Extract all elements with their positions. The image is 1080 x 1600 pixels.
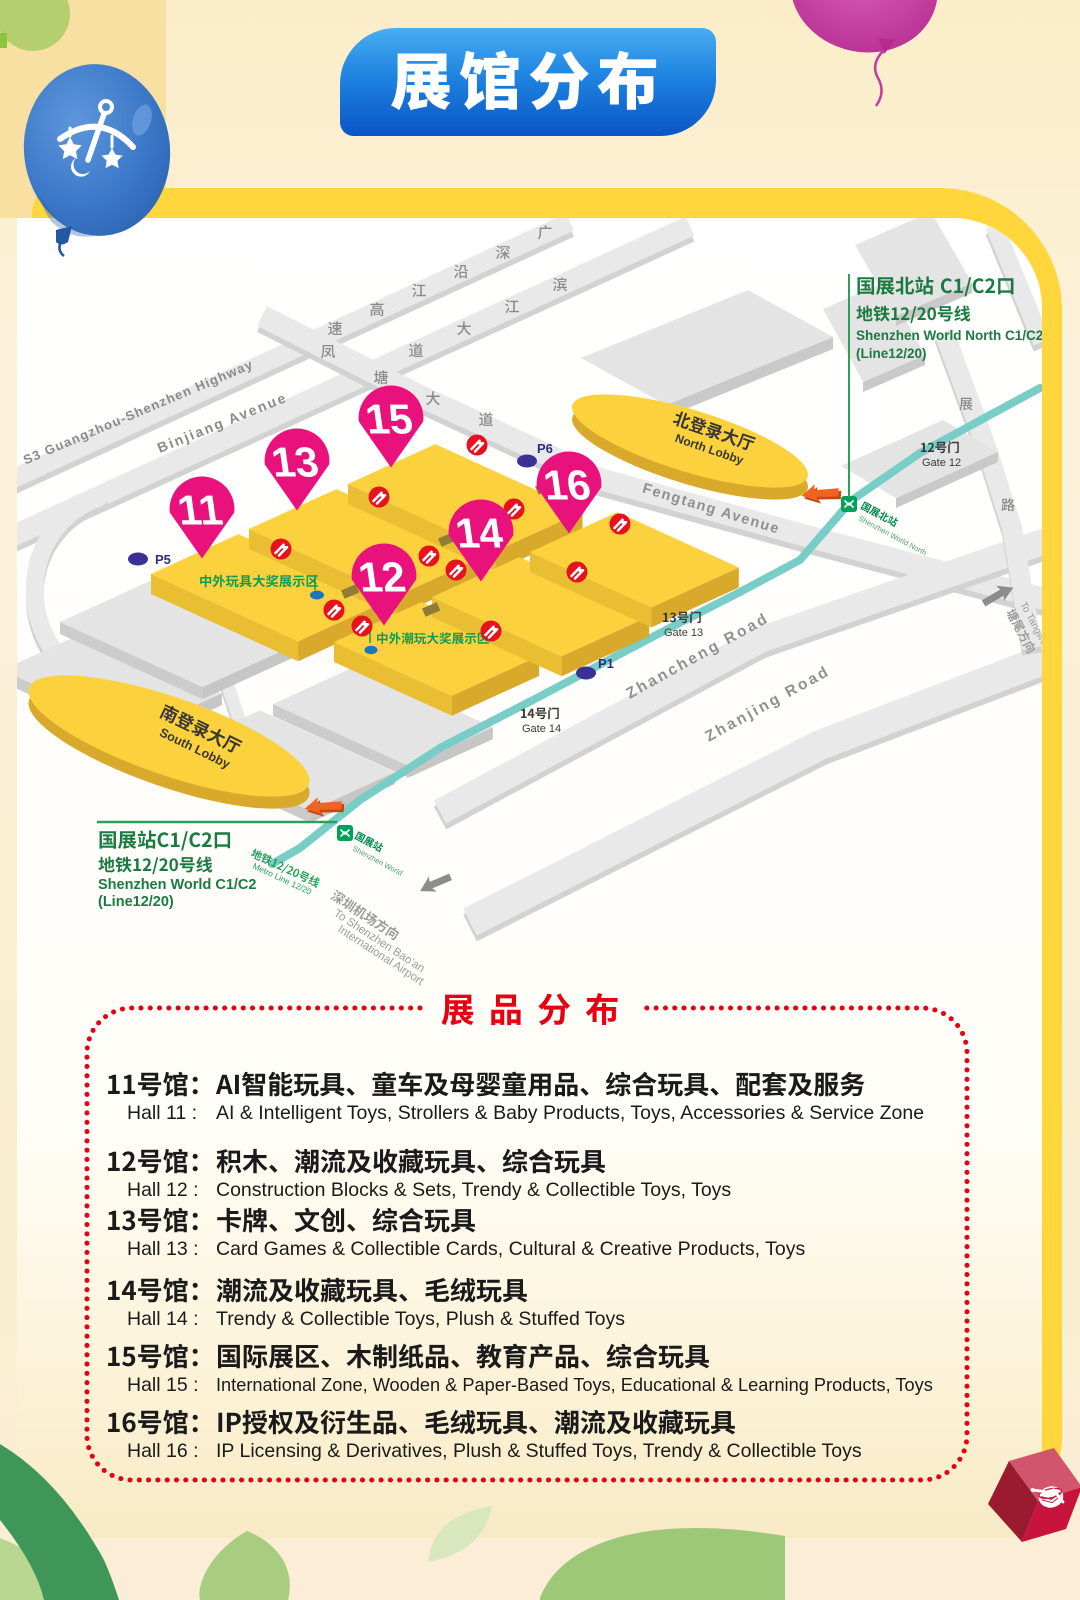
svg-text:12: 12: [355, 554, 408, 601]
svg-text:Shenzhen World North C1/C2: Shenzhen World North C1/C2: [856, 328, 1043, 343]
svg-text:(Line12/20): (Line12/20): [856, 346, 927, 361]
svg-text:Gate 13: Gate 13: [664, 627, 703, 639]
svg-text:Construction Blocks & Sets, Tr: Construction Blocks & Sets, Trendy & Col…: [216, 1179, 731, 1201]
svg-text:Gate 14: Gate 14: [522, 723, 561, 735]
svg-text:15: 15: [362, 396, 415, 443]
svg-text:Hall 12 :: Hall 12 :: [127, 1179, 199, 1201]
svg-text:AI & Intelligent Toys, Strolle: AI & Intelligent Toys, Strollers & Baby …: [216, 1102, 924, 1124]
svg-text:Hall 15 :: Hall 15 :: [127, 1374, 199, 1396]
svg-text:International Zone, Wooden & P: International Zone, Wooden & Paper-Based…: [216, 1375, 933, 1395]
svg-text:Shenzhen World C1/C2: Shenzhen World C1/C2: [98, 877, 256, 893]
svg-text:P5: P5: [155, 552, 171, 567]
svg-text:Hall 13 :: Hall 13 :: [127, 1238, 199, 1260]
svg-text:16: 16: [540, 462, 593, 509]
svg-text:Hall 16 :: Hall 16 :: [127, 1440, 199, 1462]
svg-text:P6: P6: [537, 441, 553, 456]
svg-text:13: 13: [268, 439, 321, 486]
svg-text:P1: P1: [598, 656, 614, 671]
svg-text:Trendy & Collectible Toys, Plu: Trendy & Collectible Toys, Plush & Stuff…: [216, 1308, 625, 1330]
svg-text:(Line12/20): (Line12/20): [98, 894, 174, 910]
svg-text:Hall 14 :: Hall 14 :: [127, 1308, 199, 1330]
svg-text:Card Games & Collectible Cards: Card Games & Collectible Cards, Cultural…: [216, 1238, 805, 1260]
svg-text:IP Licensing & Derivatives, Pl: IP Licensing & Derivatives, Plush & Stuf…: [216, 1440, 862, 1462]
svg-text:Hall 11 :: Hall 11 :: [127, 1102, 197, 1124]
svg-text:11: 11: [175, 487, 226, 534]
svg-text:14: 14: [452, 510, 506, 557]
svg-text:Gate 12: Gate 12: [922, 457, 961, 469]
